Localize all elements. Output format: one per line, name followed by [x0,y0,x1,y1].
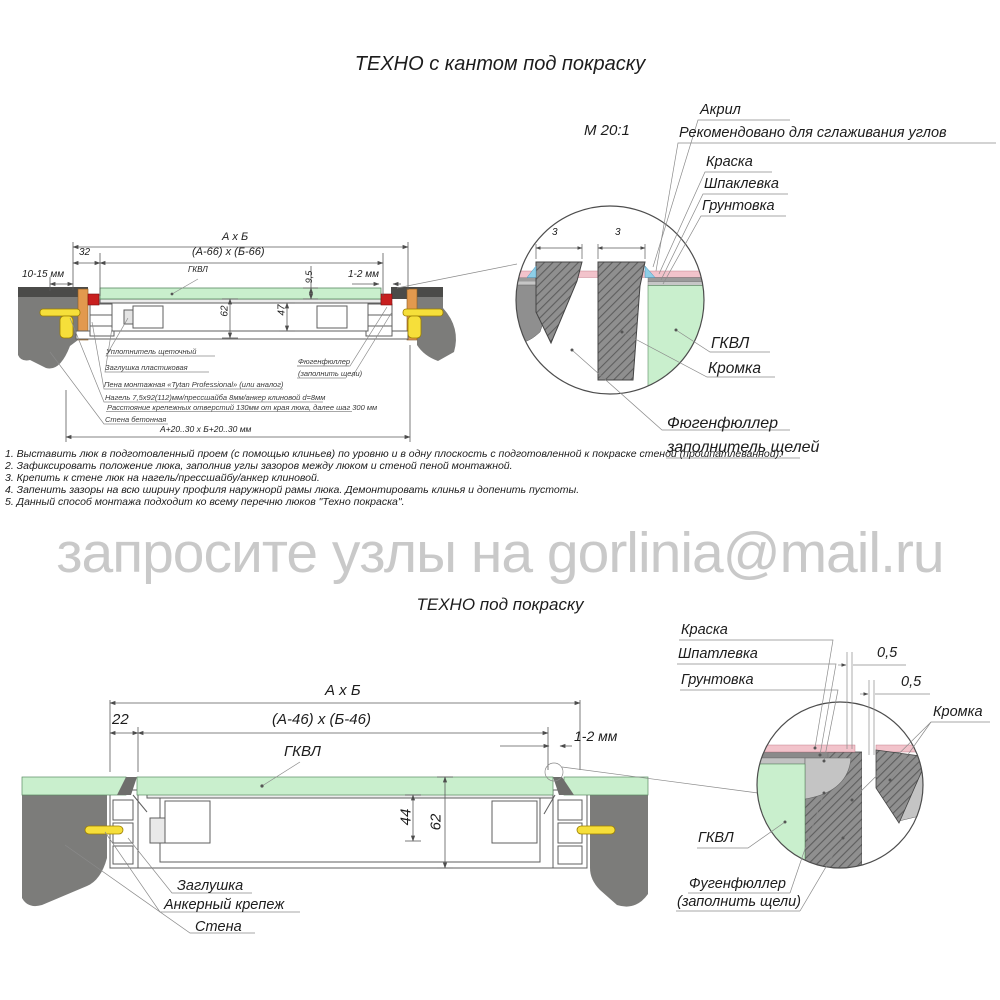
note-1: 1. Выставить люк в подготовленный проем … [5,449,782,460]
annotation-nagel: Нагель 7,5х92(112)мм/прессшайба 8мм/анке… [105,394,325,402]
dim-62-bottom: 62 [428,814,445,831]
dim-3-right: 3 [615,228,621,239]
label-fugen-top-1: Фюгенфюллер [667,416,778,433]
bottom-wall-right [590,795,648,907]
top-gkvl-panel [100,288,381,299]
top-wall-right [417,297,456,361]
callout-zaglushka: Заглушка [177,879,243,894]
top-frame-profiles [76,299,408,339]
label-gruntovka-top: Грунтовка [702,199,775,214]
label-gruntovka-bottom: Грунтовка [681,673,754,688]
callout-anker: Анкерный крепеж [164,898,284,913]
label-shpatlevka: Шпатлевка [678,647,758,662]
callout-stena: Стена [195,920,242,935]
label-gkvl-bottom-detail: ГКВЛ [698,831,734,846]
dim-62-top: 62 [220,305,231,316]
top-title: ТЕХНО с кантом под покраску [0,54,1000,75]
bottom-gkvl-wall-right [564,777,648,795]
label-recommend: Рекомендовано для сглаживания углов [679,126,947,141]
label-gkvl-top-detail: ГКВЛ [711,336,749,352]
bottom-anchor-right [577,826,615,834]
dim-32: 32 [79,248,90,259]
dim-05-lower: 0,5 [901,675,921,690]
dim-inner-bottom: (А-46) х (Б-46) [272,712,371,728]
dim-bottom-top: А+20..30 х Б+20..30 мм [160,425,251,434]
bottom-frame-profiles [110,790,587,868]
note-3: 3. Крепить к стене люк на нагель/прессша… [5,473,320,484]
note-5: 5. Данный способ монтажа подходит ко все… [5,497,405,508]
label-fugen-bottom-1: Фугенфюллер [689,877,786,892]
label-kromka-top: Кромка [708,361,761,377]
top-detail-content [515,262,707,396]
dim-axb-top: А х Б [222,232,248,244]
label-kraska-bottom: Краска [681,623,728,638]
dim-44: 44 [398,809,415,826]
annotation-fugen-2: (заполнить щели) [298,370,362,378]
dim-3-left: 3 [552,228,558,239]
annotation-pena: Пена монтажная «Tytan Professional» (или… [104,381,283,389]
annotation-fugen-1: Фюгенфюллер [298,358,350,366]
bottom-main-drawing [22,777,648,907]
annotation-zaglushka: Заглушка пластиковая [105,364,188,372]
bottom-wall-left [22,795,107,906]
bottom-gkvl-door [137,777,553,795]
dim-9-5: 9,5 [304,271,314,284]
bottom-title: ТЕХНО под покраску [0,596,1000,614]
note-2: 2. Зафиксировать положение люка, заполни… [5,461,513,472]
annotation-rasstoyanie: Расстояние крепежных отверстий 130мм от … [107,404,377,412]
technical-drawing-page: ТЕХНО с кантом под покраску М 20:1 Акрил… [0,0,1000,1000]
dim-47: 47 [277,304,288,315]
dim-10-15: 10-15 мм [22,270,64,281]
dim-inner-top: (А-66) х (Б-66) [192,247,265,259]
dim-22: 22 [112,712,129,728]
dim-05-upper: 0,5 [877,646,897,661]
annotation-stena: Стена бетонная [105,416,166,424]
dim-1-2-top: 1-2 мм [348,270,379,281]
note-4: 4. Запенить зазоры на всю ширину профиля… [5,485,579,496]
label-gkvl-top-main: ГКВЛ [188,266,208,274]
watermark: запросите узлы на gorlinia@mail.ru [0,520,1000,586]
annotation-uplotnitel: Уплотнитель щеточный [106,348,196,356]
dim-axb-bottom: А х Б [325,683,361,699]
label-shpaklevka: Шпаклевка [704,177,779,192]
label-gkvl-bottom-main: ГКВЛ [284,744,321,760]
bottom-gkvl-wall-left [22,777,126,795]
bottom-detail-content [752,740,928,872]
label-fugen-bottom-2: (заполнить щели) [677,895,801,910]
label-kromka-bottom: Кромка [933,705,983,720]
dim-1-2-bottom: 1-2 мм [574,729,617,744]
scale-label: М 20:1 [584,123,630,139]
bottom-anchor-left [85,826,123,834]
label-kraska-top: Краска [706,155,753,170]
top-seal-left [88,294,99,305]
label-akril: Акрил [700,103,741,118]
